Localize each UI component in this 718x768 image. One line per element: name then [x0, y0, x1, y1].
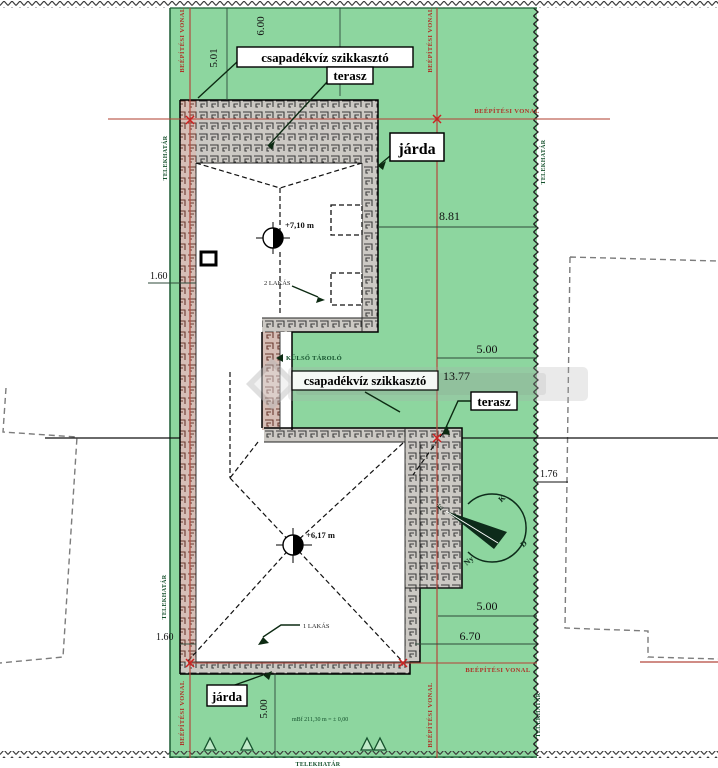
dim-1-60-lower: 1.60: [156, 632, 174, 643]
building-line-text-left-top: BEÉPÍTÉSI VONAL: [178, 7, 186, 72]
dim-5-00-mid: 5.00: [477, 342, 498, 356]
site-plan-drawing: csapadékvíz szikkasztó terasz járda csap…: [0, 0, 718, 768]
dim-13-77: 13.77: [443, 369, 470, 383]
plot-line-text-bottom: TELEKHATÁR: [296, 760, 341, 768]
label-jarda-2: járda: [207, 685, 247, 706]
level-note: mBf 211,30 m = ± 0,00: [292, 716, 348, 723]
building-line-text-right-top: BEÉPÍTÉSI VONAL: [426, 7, 434, 72]
plot-boundary-top: [0, 1, 718, 8]
label-csapadekviz-1: csapadékvíz szikkasztó: [237, 47, 413, 67]
label-2-lakas: 2 LAKÁS: [264, 279, 291, 287]
label-terasz-1-text: terasz: [333, 68, 366, 83]
label-kulso-tarolo: KÜLSŐ TÁROLÓ: [286, 354, 342, 362]
window-symbol: [201, 252, 216, 265]
building-line-text-bottom-right: BEÉPÍTÉSI VONAL: [465, 666, 530, 674]
site-plan: csapadékvíz szikkasztó terasz járda csap…: [0, 0, 718, 768]
dim-8-81: 8.81: [439, 209, 460, 223]
neighbor-building-left: [0, 388, 77, 663]
dim-5-01: 5.01: [208, 48, 220, 67]
dim-1-60-upper: 1.60: [150, 271, 168, 282]
label-csapadekviz-1-text: csapadékvíz szikkasztó: [261, 50, 388, 65]
neighbor-building-right: [565, 257, 718, 659]
plot-line-text-right-bottom: TELEKHATÁR: [534, 692, 542, 737]
label-1-lakas: 1 LAKÁS: [303, 622, 330, 630]
plot-line-text-left-top: TELEKHATÁR: [161, 135, 169, 180]
label-terasz-1: terasz: [327, 67, 373, 84]
plot-line-text-left-bottom: TELEKHATÁR: [160, 574, 168, 619]
ridge-height-lower: +6,17 m: [306, 530, 335, 540]
dim-5-00-br: 5.00: [477, 599, 498, 613]
label-terasz-2-text: terasz: [477, 394, 510, 409]
dim-1-76: 1.76: [540, 469, 558, 480]
dim-5-00-bottom: 5.00: [258, 699, 270, 719]
dim-6-70: 6.70: [460, 629, 481, 643]
label-csapadekviz-2-text: csapadékvíz szikkasztó: [304, 374, 427, 388]
dim-6-00: 6.00: [255, 16, 267, 36]
label-csapadekviz-2: csapadékvíz szikkasztó: [292, 371, 438, 390]
plot-line-text-right-top: TELEKHATÁR: [539, 139, 547, 184]
label-jarda-1-text: járda: [397, 141, 435, 158]
building-line-text-left-bottom: BEÉPÍTÉSI VONAL: [178, 680, 186, 745]
label-jarda-1: járda: [390, 133, 444, 161]
building-line-text-right-bottom: BEÉPÍTÉSI VONAL: [426, 682, 434, 747]
label-jarda-2-text: járda: [211, 689, 243, 704]
label-terasz-2: terasz: [471, 392, 517, 410]
ridge-height-upper: +7,10 m: [285, 220, 314, 230]
building-line-text-top-right: BEÉPÍTÉSI VONAL: [474, 107, 539, 115]
